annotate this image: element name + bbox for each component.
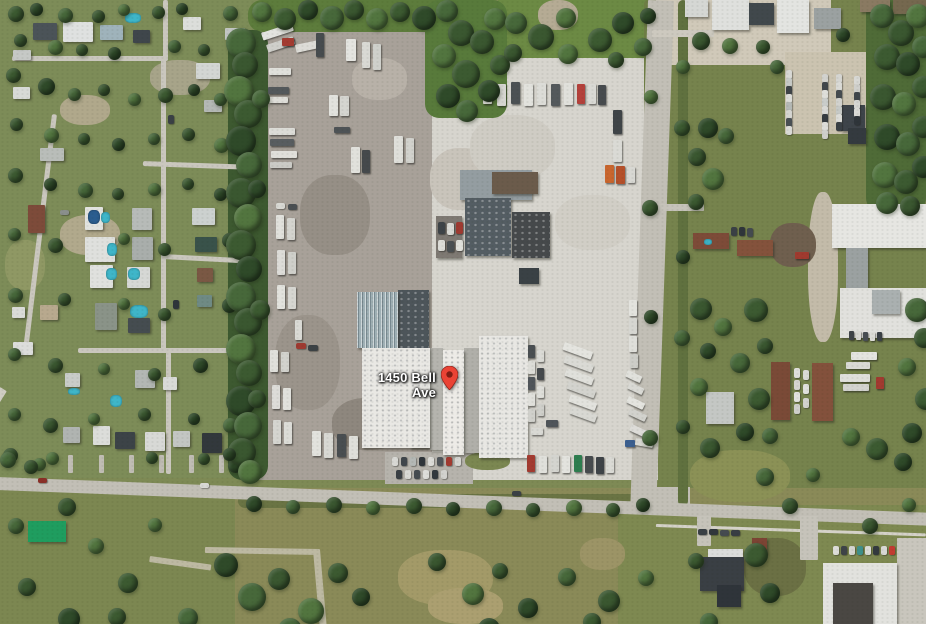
car (849, 546, 855, 555)
truck-trailer (273, 420, 281, 444)
tree (252, 90, 270, 108)
tree (894, 453, 912, 471)
tree (744, 298, 768, 322)
truck-trailer (613, 110, 622, 134)
truck-trailer (528, 361, 535, 374)
tree (842, 428, 860, 446)
tree (644, 310, 658, 324)
tree (892, 92, 916, 116)
car (803, 384, 809, 394)
tree (158, 243, 171, 256)
truck-trailer (340, 96, 349, 116)
tree (638, 570, 654, 586)
car (38, 478, 47, 483)
tree (862, 518, 878, 534)
car (833, 546, 839, 555)
car (698, 529, 707, 535)
house (173, 431, 190, 447)
car (168, 115, 174, 124)
car (405, 470, 411, 479)
truck-trailer (362, 150, 370, 173)
truck-trailer (795, 252, 809, 259)
house (183, 17, 201, 30)
building (812, 363, 833, 421)
car (447, 241, 454, 252)
truck-trailer (630, 354, 638, 368)
house (132, 208, 152, 230)
tree (8, 408, 21, 421)
truck-trailer (270, 162, 292, 168)
ground-patch (770, 223, 816, 267)
truck-trailer (349, 436, 358, 459)
truck-trailer (312, 431, 321, 456)
tree (298, 0, 318, 20)
tree (676, 420, 690, 434)
tree (118, 573, 138, 593)
car (446, 457, 452, 466)
road (99, 455, 104, 473)
tree (412, 6, 436, 30)
tree (68, 88, 81, 101)
truck-trailer (528, 393, 535, 406)
car (854, 116, 860, 125)
truck-trailer (334, 127, 350, 133)
car (747, 228, 753, 237)
truck-trailer (268, 87, 289, 94)
truck-trailer (551, 455, 559, 472)
tree (505, 12, 527, 34)
tree (344, 0, 364, 20)
tree (238, 460, 262, 484)
building (706, 392, 734, 424)
truck-trailer (337, 434, 346, 457)
tree (223, 6, 238, 21)
tree (644, 90, 658, 104)
tree (250, 300, 270, 320)
tree (756, 468, 774, 486)
truck-trailer (629, 318, 637, 334)
building (777, 0, 809, 33)
house (40, 305, 58, 320)
truck-trailer (524, 84, 533, 106)
ground-patch (690, 450, 790, 502)
tree (900, 196, 920, 216)
tree (8, 168, 23, 183)
car (803, 370, 809, 380)
tree (48, 358, 63, 373)
car (396, 470, 402, 479)
truck-trailer (539, 456, 547, 473)
tree (688, 194, 704, 210)
tree (118, 4, 130, 16)
car (288, 204, 297, 210)
building (708, 549, 743, 557)
tree (44, 178, 57, 191)
truck-trailer (277, 285, 285, 309)
car (428, 457, 434, 466)
tree (566, 500, 582, 516)
road (129, 455, 134, 473)
tree (286, 500, 300, 514)
tree (702, 168, 724, 190)
tree (406, 498, 422, 514)
truck-trailer (843, 384, 869, 391)
tree (232, 52, 258, 78)
house (132, 237, 153, 260)
tree (78, 133, 90, 145)
tree (98, 363, 110, 375)
car (512, 491, 521, 496)
tree (606, 503, 620, 517)
satellite-map[interactable]: 1450 Bell Ave (0, 0, 926, 624)
truck-trailer (271, 151, 297, 158)
address-label[interactable]: 1450 Bell Ave (352, 370, 436, 400)
car (438, 222, 445, 234)
tree (636, 498, 650, 512)
tree (836, 28, 850, 42)
car (456, 240, 463, 251)
truck-trailer (596, 457, 604, 474)
tree (246, 496, 262, 512)
car (296, 343, 306, 349)
tree (214, 553, 238, 577)
tree (236, 256, 262, 282)
tree (674, 120, 690, 136)
car (173, 300, 179, 309)
building-corrugated (357, 292, 398, 348)
building (685, 0, 708, 17)
truck-trailer (564, 83, 573, 105)
truck-trailer (546, 420, 558, 427)
tree (88, 413, 100, 425)
road (800, 516, 818, 560)
truck-trailer (511, 82, 520, 104)
tree (700, 438, 720, 458)
tree (676, 60, 690, 74)
tree (274, 8, 296, 30)
tree (558, 568, 576, 586)
tree (518, 598, 538, 618)
tree (158, 308, 171, 321)
car (392, 457, 398, 466)
car (889, 546, 895, 555)
truck-trailer (588, 84, 596, 104)
tree (642, 430, 658, 446)
tree (770, 60, 784, 74)
tree (92, 10, 105, 23)
tree (866, 438, 888, 460)
warehouse-roof (479, 336, 528, 458)
tree (236, 360, 262, 386)
ground-patch (580, 538, 625, 570)
tree (193, 358, 208, 373)
truck-trailer (577, 84, 585, 104)
truck-trailer (598, 85, 606, 105)
car (822, 130, 828, 139)
house (195, 237, 217, 252)
truck-trailer (551, 84, 560, 106)
car (437, 457, 443, 466)
tree (366, 8, 388, 30)
tree (8, 228, 21, 241)
road (189, 455, 194, 473)
house (197, 295, 212, 307)
car (60, 210, 69, 215)
car (414, 470, 420, 479)
house (33, 23, 57, 40)
car (794, 380, 800, 390)
tree (902, 423, 922, 443)
truck-trailer (629, 336, 637, 352)
truck-trailer (283, 388, 291, 410)
tree (152, 6, 165, 19)
tree (484, 8, 506, 30)
truck-trailer (269, 97, 288, 103)
truck-trailer (870, 332, 875, 341)
tree (328, 563, 348, 583)
tree (248, 180, 266, 198)
car (881, 546, 887, 555)
tree (478, 80, 500, 102)
tree (436, 0, 458, 22)
car (276, 203, 285, 209)
truck-trailer (625, 440, 635, 447)
ground-patch (60, 95, 110, 125)
tree (14, 34, 27, 47)
tree (148, 133, 160, 145)
tree (583, 613, 601, 624)
car (432, 470, 438, 479)
truck-trailer (269, 128, 295, 135)
truck-trailer (346, 39, 356, 61)
house (128, 318, 150, 333)
tree (748, 388, 770, 410)
tree (428, 553, 446, 571)
pool (88, 210, 100, 224)
tree (148, 518, 162, 532)
tree (700, 613, 718, 624)
truck-trailer (627, 167, 635, 183)
car (200, 483, 209, 488)
tree (452, 60, 480, 88)
truck-trailer (629, 300, 637, 316)
truck-trailer (269, 68, 291, 75)
tree (744, 543, 768, 567)
truck-trailer (613, 140, 622, 162)
tree (762, 428, 778, 444)
tree (98, 84, 110, 96)
building (492, 172, 538, 194)
truck-trailer (562, 456, 570, 473)
pool (106, 268, 117, 280)
tree (148, 368, 161, 381)
truck-trailer (528, 377, 535, 390)
car (456, 222, 463, 234)
truck-trailer (528, 409, 535, 422)
tree (188, 84, 200, 96)
building-mottled (512, 212, 550, 258)
truck-trailer (295, 320, 302, 340)
tree (108, 47, 121, 60)
street (12, 56, 168, 61)
tree (486, 500, 502, 516)
truck-trailer (270, 350, 278, 372)
tree (30, 3, 43, 16)
tree (352, 588, 370, 606)
street (78, 348, 230, 353)
tree (492, 563, 508, 579)
car (786, 126, 792, 135)
tree (234, 412, 262, 440)
tree (688, 148, 706, 166)
tree (118, 298, 130, 310)
tree (598, 590, 620, 612)
tree (714, 318, 732, 336)
car (857, 546, 863, 555)
tree (198, 44, 210, 56)
truck-trailer (574, 455, 582, 472)
house (93, 426, 110, 445)
truck-trailer (851, 352, 877, 360)
tree (48, 40, 63, 55)
car (410, 457, 416, 466)
tree (612, 12, 634, 34)
truck-trailer (329, 95, 338, 116)
tree (634, 38, 652, 56)
truck-trailer (277, 250, 285, 275)
tree (43, 418, 58, 433)
building (846, 248, 868, 288)
truck-trailer (537, 368, 544, 380)
tree (760, 583, 780, 603)
tree (736, 423, 754, 441)
building (749, 3, 774, 25)
tree (718, 128, 734, 144)
tree (238, 583, 266, 611)
house (13, 50, 31, 60)
pin-body (441, 366, 458, 390)
tree (366, 501, 380, 515)
house (12, 307, 25, 318)
tree (558, 44, 578, 64)
pool (110, 395, 122, 407)
tree (252, 2, 272, 22)
tree (44, 128, 59, 143)
tree (390, 2, 410, 22)
car (731, 530, 740, 536)
road (68, 455, 73, 473)
tree (432, 44, 456, 68)
yard-surface (897, 538, 926, 624)
tree (58, 608, 80, 624)
truck-trailer (527, 455, 535, 472)
truck-trailer (284, 422, 292, 444)
house (145, 432, 165, 451)
tree (756, 40, 770, 54)
truck-trailer (406, 138, 414, 163)
tree (905, 298, 926, 322)
house (63, 427, 80, 443)
tree (320, 6, 344, 30)
tree (10, 118, 23, 131)
car (709, 529, 718, 535)
tree (642, 200, 658, 216)
truck-trailer (537, 404, 544, 416)
building (464, 348, 479, 453)
car (794, 368, 800, 378)
tree (268, 568, 290, 590)
building (737, 240, 773, 256)
car (794, 404, 800, 414)
tree (640, 8, 656, 24)
tree (674, 330, 690, 346)
tree (902, 498, 916, 512)
truck-trailer (288, 287, 296, 309)
tree (58, 293, 71, 306)
house (192, 208, 215, 225)
truck-trailer (362, 42, 370, 68)
tree (906, 4, 926, 28)
truck-trailer (849, 331, 854, 340)
tree (234, 204, 262, 232)
house (163, 377, 177, 390)
building (771, 362, 790, 420)
truck-trailer (877, 332, 882, 341)
house (28, 205, 45, 233)
truck-trailer (324, 433, 333, 458)
tree (806, 468, 820, 482)
car (841, 546, 847, 555)
house (100, 25, 123, 40)
road (159, 455, 164, 473)
building (717, 585, 741, 607)
tree (688, 553, 704, 569)
map-pin-icon[interactable] (441, 366, 458, 390)
tree (176, 3, 188, 15)
pool (101, 212, 110, 223)
tree (178, 608, 198, 624)
tree (236, 152, 262, 178)
truck-trailer (605, 165, 614, 183)
pool (128, 268, 140, 280)
house (40, 148, 64, 161)
truck-trailer (537, 386, 544, 398)
truck-trailer (373, 44, 381, 70)
car (441, 470, 447, 479)
tree (462, 583, 484, 605)
tree (608, 52, 624, 68)
car (438, 240, 445, 251)
car (865, 546, 871, 555)
truck-trailer (537, 350, 544, 362)
tree (556, 8, 576, 28)
house (13, 87, 30, 99)
car (720, 530, 729, 536)
tree (692, 32, 710, 50)
tree (298, 598, 324, 624)
house (133, 30, 150, 43)
tree (78, 183, 93, 198)
building (833, 583, 873, 624)
truck-trailer (531, 428, 543, 435)
truck-trailer (528, 345, 535, 358)
tree (112, 138, 125, 151)
truck-trailer (288, 252, 296, 274)
tree (690, 378, 708, 396)
tree (446, 502, 460, 516)
truck-trailer (537, 83, 546, 105)
tree (757, 338, 773, 354)
